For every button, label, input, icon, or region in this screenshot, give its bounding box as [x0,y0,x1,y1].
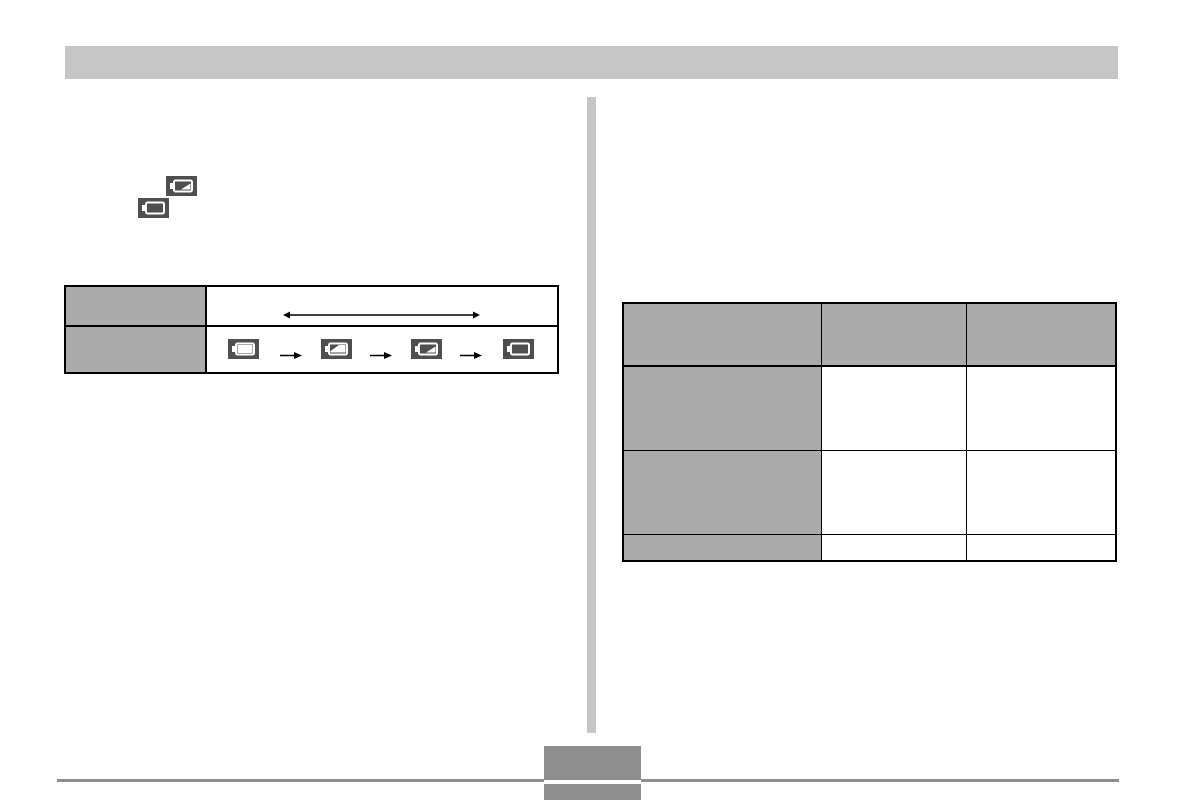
table-cell [967,451,1115,535]
battery-indicator-table [64,285,559,374]
battery-range-cell [207,287,557,327]
battery-table-header-cell-1 [66,287,207,327]
battery-one-third-icon [411,339,442,359]
data-table [622,302,1117,562]
table-row-label-cell [624,535,822,560]
table-cell [822,367,967,451]
right-arrow-icon [460,347,482,365]
table-cell [822,451,967,535]
page-title-bar [65,46,1118,79]
table-cell [967,367,1115,451]
footer-page-number-box [544,784,641,800]
table-cell [822,535,967,560]
battery-sequence-cell [207,327,557,372]
battery-full-icon [228,339,259,359]
table-header-cell [822,304,967,367]
table-header-cell [624,304,822,367]
battery-two-thirds-icon [321,339,352,359]
footer-section-box [544,746,641,780]
battery-table-header-cell-2 [66,327,207,372]
footer-rule-left [57,779,544,782]
table-row-label-cell [624,367,822,451]
footer-rule-right [641,779,1119,782]
double-headed-arrow-icon [283,307,480,325]
table-header-cell [967,304,1115,367]
battery-empty-icon [503,339,534,359]
right-arrow-icon [370,347,392,365]
right-arrow-icon [280,347,302,365]
battery-empty-icon [138,198,169,218]
battery-one-third-icon [166,176,197,196]
table-row-label-cell [624,451,822,535]
column-divider [587,97,596,733]
manual-page [0,0,1183,800]
table-cell [967,535,1115,560]
